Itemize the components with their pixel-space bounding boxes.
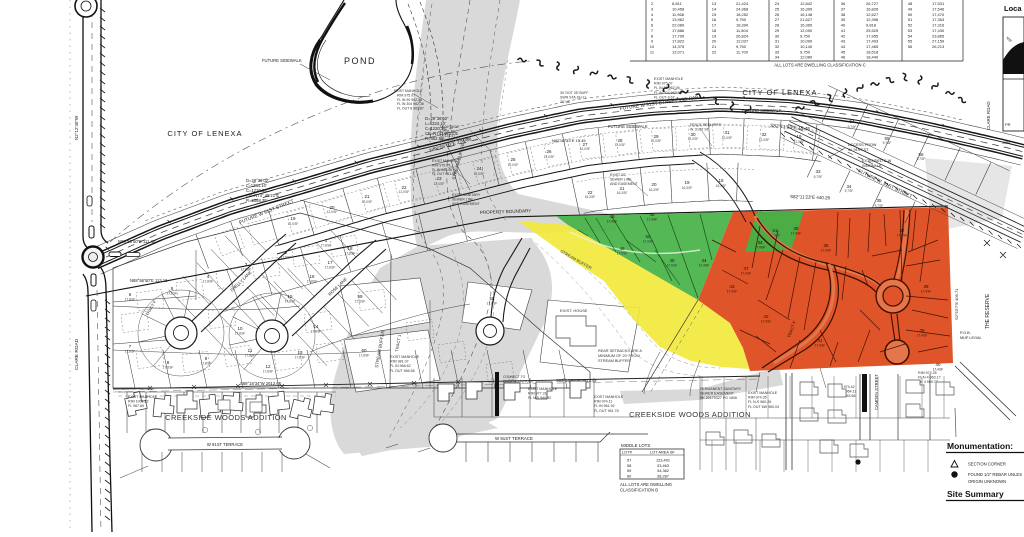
svg-text:FUTURE SIDEWALK: FUTURE SIDEWALK — [262, 58, 302, 63]
svg-text:FL IN 304 962.36: FL IN 304 962.36 — [397, 102, 424, 106]
svg-text:22: 22 — [712, 49, 717, 54]
svg-text:12,0 SF: 12,0 SF — [288, 222, 299, 226]
svg-text:LOT AREA SF: LOT AREA SF — [650, 450, 675, 455]
svg-text:17,4 SF: 17,4 SF — [791, 232, 802, 236]
svg-text:54: 54 — [849, 119, 855, 124]
svg-text:FL IN 968.62: FL IN 968.62 — [390, 364, 411, 368]
svg-text:17,4 SF: 17,4 SF — [917, 334, 928, 338]
svg-text:12,842: 12,842 — [800, 1, 813, 6]
svg-text:17,4 SF: 17,4 SF — [815, 344, 826, 348]
svg-text:17,4 SF: 17,4 SF — [761, 320, 772, 324]
svg-text:RIM 1001.22: RIM 1001.22 — [128, 400, 149, 404]
svg-text:17,8 SF: 17,8 SF — [125, 350, 136, 354]
svg-text:12,0 SF: 12,0 SF — [474, 172, 485, 176]
svg-text:42: 42 — [763, 314, 769, 319]
svg-text:17,8 SF: 17,8 SF — [325, 266, 336, 270]
svg-text:CLARE ROAD: CLARE ROAD — [986, 101, 991, 130]
svg-text:19: 19 — [290, 216, 296, 221]
svg-text:39: 39 — [919, 328, 925, 333]
svg-text:FUTURE SIDEWALK: FUTURE SIDEWALK — [608, 124, 648, 129]
svg-text:18,252: 18,252 — [736, 12, 749, 17]
svg-text:123,401: 123,401 — [656, 458, 670, 463]
svg-text:FL IN 962.06: FL IN 962.06 — [432, 168, 452, 172]
svg-text:9,750: 9,750 — [736, 44, 747, 49]
svg-text:47: 47 — [743, 266, 749, 271]
svg-text:L=131.63: L=131.63 — [440, 129, 455, 133]
svg-text:54: 54 — [908, 33, 913, 38]
svg-text:11,804: 11,804 — [736, 28, 749, 33]
svg-text:STREAM BUFFER: STREAM BUFFER — [598, 359, 630, 363]
svg-text:16: 16 — [309, 274, 315, 279]
svg-text:17,8 SF: 17,8 SF — [295, 356, 306, 360]
svg-text:R=2388.35’: R=2388.35’ — [246, 198, 268, 203]
svg-text:12,071: 12,071 — [672, 49, 685, 54]
svg-text:30’ DOT 35’ BUFF: 30’ DOT 35’ BUFF — [560, 91, 588, 95]
svg-text:9,818: 9,818 — [866, 23, 877, 28]
svg-text:11,968: 11,968 — [672, 12, 685, 17]
svg-text:Monumentation:: Monumentation: — [947, 441, 1013, 451]
svg-text:N2°12’45”W: N2°12’45”W — [74, 115, 79, 140]
svg-text:FL IN 30 962.06: FL IN 30 962.06 — [654, 86, 680, 90]
svg-text:21,627: 21,627 — [800, 17, 813, 22]
svg-text:19: 19 — [684, 180, 690, 185]
svg-text:26: 26 — [546, 149, 552, 154]
svg-text:9,7 SF: 9,7 SF — [845, 189, 854, 193]
svg-text:EXIST 30”: EXIST 30” — [610, 173, 627, 177]
svg-text:BK 4 969.77: BK 4 969.77 — [918, 380, 938, 384]
svg-text:17,8 SF: 17,8 SF — [263, 370, 274, 374]
svg-text:43: 43 — [729, 284, 735, 289]
svg-text:S2°53’7”E 409.71: S2°53’7”E 409.71 — [954, 288, 959, 320]
svg-text:EXIST MANHOLE: EXIST MANHOLE — [128, 395, 158, 399]
svg-text:RIM 974.35: RIM 974.35 — [748, 396, 767, 400]
svg-text:11,700: 11,700 — [736, 49, 749, 54]
svg-text:RIM 977.31: RIM 977.31 — [528, 392, 547, 396]
svg-text:16,395: 16,395 — [800, 7, 813, 12]
svg-text:19: 19 — [712, 33, 717, 38]
svg-text:13: 13 — [712, 1, 717, 6]
svg-text:26,824: 26,824 — [736, 33, 749, 38]
svg-text:12,627: 12,627 — [866, 12, 879, 17]
svg-text:17,4 SF: 17,4 SF — [607, 220, 618, 224]
svg-text:SWR STA 18+11: SWR STA 18+11 — [560, 95, 586, 99]
svg-text:17,4 SF: 17,4 SF — [727, 290, 738, 294]
svg-text:23: 23 — [436, 176, 442, 181]
svg-text:16,3 SF: 16,3 SF — [716, 184, 727, 188]
svg-text:12,0 SF: 12,0 SF — [759, 138, 770, 142]
svg-text:EXIST. HOUSE: EXIST. HOUSE — [560, 308, 588, 313]
svg-text:17,363: 17,363 — [932, 17, 945, 22]
svg-text:59: 59 — [357, 294, 363, 299]
svg-text:EXTENDED C-W: EXTENDED C-W — [862, 159, 892, 163]
svg-text:49: 49 — [619, 246, 625, 251]
svg-text:52: 52 — [908, 23, 913, 28]
svg-text:17,8 SF: 17,8 SF — [321, 244, 332, 248]
svg-text:ACCESS PROW: ACCESS PROW — [848, 143, 877, 147]
svg-text:17,5 SF: 17,5 SF — [617, 252, 628, 256]
svg-text:17,8 SF: 17,8 SF — [487, 302, 498, 306]
svg-text:SEWER LINE: SEWER LINE — [610, 177, 632, 181]
svg-text:9,7 SF: 9,7 SF — [814, 175, 823, 179]
svg-text:23,865: 23,865 — [932, 33, 945, 38]
svg-text:RIM 974.26: RIM 974.26 — [918, 371, 937, 375]
svg-text:45: 45 — [649, 212, 655, 217]
svg-text:9,7 SF: 9,7 SF — [875, 204, 884, 208]
svg-text:W. 91ST ST.: W. 91ST ST. — [848, 148, 869, 152]
svg-text:17,8 SF: 17,8 SF — [281, 256, 292, 260]
svg-text:41: 41 — [841, 28, 846, 33]
svg-text:18,390: 18,390 — [736, 23, 749, 28]
svg-text:17,799: 17,799 — [672, 33, 685, 38]
svg-text:25: 25 — [775, 7, 780, 12]
svg-text:PR: PR — [1005, 122, 1011, 127]
svg-text:18,440: 18,440 — [866, 55, 879, 60]
svg-text:17,4 SF: 17,4 SF — [643, 240, 654, 244]
svg-text:CONNECT TO: CONNECT TO — [503, 375, 526, 379]
svg-text:14: 14 — [313, 324, 319, 329]
svg-text:CITY OF LENEXA: CITY OF LENEXA — [742, 88, 817, 97]
svg-text:26,213: 26,213 — [932, 44, 945, 49]
svg-text:27: 27 — [775, 17, 780, 22]
svg-text:17,465: 17,465 — [866, 44, 879, 49]
svg-text:39: 39 — [841, 17, 846, 22]
svg-text:9,7 SF: 9,7 SF — [917, 157, 926, 161]
svg-text:16,365: 16,365 — [800, 23, 813, 28]
svg-text:SEWER EASEMENT: SEWER EASEMENT — [700, 392, 735, 396]
svg-text:POND: POND — [344, 56, 376, 66]
svg-text:35: 35 — [793, 226, 799, 231]
svg-text:34: 34 — [775, 55, 780, 60]
svg-text:57: 57 — [627, 458, 631, 463]
svg-text:FL 987.69: FL 987.69 — [128, 404, 144, 408]
svg-text:24: 24 — [775, 1, 780, 6]
svg-text:CREEKSIDE WOODS ADDITION: CREEKSIDE WOODS ADDITION — [165, 413, 287, 422]
svg-text:EXIST MANHOLE: EXIST MANHOLE — [594, 395, 624, 399]
svg-text:12,0 SF: 12,0 SF — [580, 147, 591, 151]
svg-text:12,0 SF: 12,0 SF — [434, 182, 445, 186]
svg-text:30: 30 — [775, 33, 780, 38]
svg-text:36: 36 — [841, 1, 846, 6]
svg-text:17,430: 17,430 — [932, 28, 945, 33]
svg-text:10,458: 10,458 — [672, 7, 685, 12]
svg-text:9,750: 9,750 — [800, 49, 811, 54]
svg-text:17,8 SF: 17,8 SF — [201, 362, 212, 366]
svg-text:Site Summary: Site Summary — [947, 489, 1004, 499]
svg-text:ALL LOTS ARE DWELLING: ALL LOTS ARE DWELLING — [620, 482, 672, 487]
svg-text:18,518: 18,518 — [866, 49, 879, 54]
svg-text:44: 44 — [841, 44, 846, 49]
svg-text:56: 56 — [908, 44, 913, 49]
svg-text:12,0 SF: 12,0 SF — [615, 143, 626, 147]
svg-text:14: 14 — [712, 7, 717, 12]
svg-text:25: 25 — [510, 157, 516, 162]
svg-text:16,3 SF: 16,3 SF — [649, 188, 660, 192]
svg-text:59: 59 — [627, 468, 631, 473]
svg-text:RIM 975.07: RIM 975.07 — [654, 82, 673, 86]
svg-text:60: 60 — [361, 348, 367, 353]
svg-text:45: 45 — [841, 49, 846, 54]
svg-text:EXIST MANHOLE: EXIST MANHOLE — [654, 77, 684, 81]
svg-text:CITY OF LENEXA: CITY OF LENEXA — [167, 129, 242, 138]
svg-text:33: 33 — [815, 169, 821, 174]
svg-text:49: 49 — [908, 7, 913, 12]
svg-text:LOT#: LOT# — [622, 450, 633, 455]
svg-text:9,7 SF: 9,7 SF — [848, 125, 857, 129]
svg-text:35: 35 — [876, 198, 882, 203]
svg-text:20: 20 — [712, 39, 717, 44]
svg-text:41: 41 — [817, 338, 823, 343]
svg-text:58: 58 — [489, 296, 495, 301]
svg-text:EXIST MANHOLE: EXIST MANHOLE — [390, 355, 420, 359]
svg-text:CAMDEN STREET: CAMDEN STREET — [874, 374, 879, 410]
svg-text:38: 38 — [841, 12, 846, 17]
svg-text:12,090: 12,090 — [800, 28, 813, 33]
svg-text:25,525: 25,525 — [866, 28, 879, 33]
svg-text:RIM 975.07: RIM 975.07 — [432, 163, 450, 167]
svg-text:21: 21 — [364, 194, 370, 199]
svg-text:N88°56’50”E 113.16: N88°56’50”E 113.16 — [130, 278, 168, 283]
svg-text:W 91ST TERRACE: W 91ST TERRACE — [207, 442, 243, 447]
svg-text:ALL LOTS ARE DWELLING CLASSIFI: ALL LOTS ARE DWELLING CLASSIFICATION C — [774, 63, 865, 68]
svg-text:17,4 SF: 17,4 SF — [755, 246, 766, 250]
svg-text:33: 33 — [775, 49, 780, 54]
svg-text:SIDEWALK: SIDEWALK — [862, 164, 882, 168]
svg-text:50: 50 — [908, 12, 913, 17]
svg-text:42: 42 — [841, 33, 846, 38]
svg-text:EXIST MANHOLE: EXIST MANHOLE — [748, 391, 778, 395]
svg-text:PERMANENT SANITARY: PERMANENT SANITARY — [700, 387, 742, 391]
svg-text:16,826: 16,826 — [866, 7, 879, 12]
svg-text:Loca: Loca — [1004, 4, 1022, 13]
svg-text:12,0 SF: 12,0 SF — [688, 137, 699, 141]
svg-text:W. 91ST ST.: W. 91ST ST. — [690, 127, 710, 131]
svg-text:31: 31 — [724, 130, 730, 135]
svg-text:N88°56’50”E 111.42’: N88°56’50”E 111.42’ — [118, 239, 156, 244]
svg-text:12,0 SF: 12,0 SF — [544, 155, 555, 159]
svg-text:32: 32 — [761, 132, 767, 137]
svg-text:17,4 SF: 17,4 SF — [699, 264, 710, 268]
svg-text:33,463: 33,463 — [657, 463, 669, 468]
svg-text:53: 53 — [908, 28, 913, 33]
svg-text:CB=N79° 47’21”E: CB=N79° 47’21”E — [440, 138, 468, 142]
svg-text:17,8 SF: 17,8 SF — [345, 252, 356, 256]
svg-text:C=131.47: C=131.47 — [440, 134, 455, 138]
svg-text:12,0 SF: 12,0 SF — [508, 163, 519, 167]
svg-text:6,811: 6,811 — [672, 1, 682, 6]
svg-text:CLARE ROAD: CLARE ROAD — [74, 338, 80, 370]
svg-text:17,5 SF: 17,5 SF — [667, 264, 678, 268]
svg-text:17,8 SF: 17,8 SF — [355, 300, 366, 304]
svg-text:FL OUT 6W 960.04: FL OUT 6W 960.04 — [748, 405, 779, 409]
svg-text:36: 36 — [823, 243, 829, 248]
svg-text:17,8 SF: 17,8 SF — [285, 300, 296, 304]
svg-text:RIM 975.07: RIM 975.07 — [397, 93, 415, 97]
svg-text:17,4 SF: 17,4 SF — [647, 218, 658, 222]
svg-text:P.O.B.: P.O.B. — [960, 331, 971, 335]
svg-text:FL OUT 8.67: FL OUT 8.67 — [654, 95, 675, 99]
svg-text:17: 17 — [712, 23, 717, 28]
svg-text:EXIST MANHOLE: EXIST MANHOLE — [528, 387, 558, 391]
svg-text:17,470: 17,470 — [932, 12, 945, 17]
svg-text:43: 43 — [841, 39, 846, 44]
svg-text:CREEKSIDE WOODS ADDITION: CREEKSIDE WOODS ADDITION — [629, 410, 751, 419]
svg-text:12: 12 — [265, 364, 271, 369]
svg-text:17,8 SF: 17,8 SF — [203, 280, 214, 284]
svg-text:10: 10 — [650, 44, 655, 49]
svg-text:48: 48 — [908, 1, 913, 6]
svg-text:17,8 SF: 17,8 SF — [167, 292, 178, 296]
svg-text:9,7 SF: 9,7 SF — [883, 141, 892, 145]
svg-text:26,727: 26,727 — [866, 1, 879, 6]
svg-text:17,8 SF: 17,8 SF — [241, 268, 252, 272]
svg-text:31: 31 — [775, 39, 780, 44]
svg-text:FL N 4 963.17: FL N 4 963.17 — [918, 376, 941, 380]
svg-text:44: 44 — [701, 258, 707, 263]
svg-text:17,8 SF: 17,8 SF — [359, 354, 370, 358]
svg-text:32: 32 — [775, 44, 780, 49]
svg-text:SECTION CORNER: SECTION CORNER — [968, 462, 1006, 467]
svg-text:17: 17 — [327, 260, 333, 265]
svg-text:13,962: 13,962 — [672, 17, 685, 22]
svg-text:27,159: 27,159 — [932, 39, 945, 44]
svg-text:16: 16 — [712, 17, 717, 22]
svg-text:17,8 SF: 17,8 SF — [311, 330, 322, 334]
svg-text:46: 46 — [841, 55, 846, 60]
svg-text:40: 40 — [935, 362, 941, 367]
svg-text:17,316: 17,316 — [932, 23, 945, 28]
svg-text:50: 50 — [645, 234, 651, 239]
svg-text:16,3 SF: 16,3 SF — [617, 191, 628, 195]
svg-text:17,546: 17,546 — [932, 7, 945, 12]
svg-text:W 91ST TERRACE: W 91ST TERRACE — [495, 436, 533, 441]
svg-text:SEWER LINE: SEWER LINE — [452, 197, 474, 201]
svg-text:46: 46 — [609, 214, 615, 219]
svg-text:FENCE REQUIRED: FENCE REQUIRED — [690, 123, 722, 127]
svg-text:MIDDLE LOTS: MIDDLE LOTS — [621, 443, 650, 448]
svg-text:17,8 SF: 17,8 SF — [125, 298, 136, 302]
svg-text:AND EASEMENT: AND EASEMENT — [452, 202, 480, 206]
svg-text:FOUND 1/2” REBAR UNLES: FOUND 1/2” REBAR UNLES — [968, 472, 1022, 477]
svg-text:55: 55 — [908, 39, 913, 44]
svg-text:15: 15 — [712, 12, 717, 17]
svg-text:FL N-S 960.92: FL N-S 960.92 — [528, 396, 551, 400]
svg-text:12,037: 12,037 — [736, 39, 749, 44]
svg-text:EXIST MANHOLE: EXIST MANHOLE — [394, 89, 423, 93]
svg-text:D=09°36’02”: D=09°36’02” — [440, 125, 460, 129]
svg-text:CLASSIFICATION B: CLASSIFICATION B — [620, 488, 658, 493]
svg-text:ORIGIN UNKNOWN: ORIGIN UNKNOWN — [968, 479, 1006, 484]
svg-text:16,3 SF: 16,3 SF — [682, 186, 693, 190]
svg-text:9,750: 9,750 — [800, 33, 811, 38]
svg-text:17,4 SF: 17,4 SF — [897, 234, 908, 238]
svg-text:10,140: 10,140 — [800, 44, 813, 49]
svg-text:12,0 SF: 12,0 SF — [362, 200, 373, 204]
svg-text:10: 10 — [237, 326, 243, 331]
svg-text:12,080: 12,080 — [800, 55, 813, 60]
svg-text:MUP LEGAL: MUP LEGAL — [960, 336, 982, 340]
svg-text:34,362: 34,362 — [657, 468, 669, 473]
svg-text:20: 20 — [651, 182, 657, 187]
svg-text:17,8 SF: 17,8 SF — [163, 366, 174, 370]
svg-text:18: 18 — [718, 178, 724, 183]
svg-text:19: 19 — [796, 134, 802, 139]
svg-text:15: 15 — [287, 294, 293, 299]
svg-text:24: 24 — [476, 166, 482, 171]
svg-text:29: 29 — [775, 28, 780, 33]
svg-text:40: 40 — [841, 23, 846, 28]
svg-text:20’ UE: 20’ UE — [560, 100, 571, 104]
svg-text:BK 20170327 PG 1806: BK 20170327 PG 1806 — [700, 396, 737, 400]
svg-text:37: 37 — [841, 7, 846, 12]
svg-text:34: 34 — [757, 240, 763, 245]
svg-text:17,4 SF: 17,4 SF — [821, 249, 832, 253]
svg-text:38: 38 — [923, 284, 929, 289]
svg-text:12,0 SF: 12,0 SF — [651, 139, 662, 143]
svg-text:12,0 SF: 12,0 SF — [794, 140, 805, 144]
svg-text:17,822: 17,822 — [672, 39, 685, 44]
svg-text:26: 26 — [775, 12, 780, 17]
svg-text:48: 48 — [669, 258, 675, 263]
svg-text:17,886: 17,886 — [672, 28, 685, 33]
svg-text:28: 28 — [775, 23, 780, 28]
svg-text:RIM 981.07: RIM 981.07 — [390, 360, 409, 364]
svg-text:17,8 SF: 17,8 SF — [245, 354, 256, 358]
svg-text:13: 13 — [297, 350, 303, 355]
svg-text:MINIMUM OF 20’ FROM: MINIMUM OF 20’ FROM — [598, 354, 640, 358]
svg-text:12,0 SF: 12,0 SF — [722, 136, 733, 140]
svg-text:17,4 SF: 17,4 SF — [741, 272, 752, 276]
svg-text:EXIST SANITARY: EXIST SANITARY — [452, 193, 481, 197]
svg-text:22,089: 22,089 — [672, 23, 685, 28]
svg-text:18: 18 — [347, 246, 353, 251]
svg-text:FL IN 304 962.36: FL IN 304 962.36 — [654, 91, 682, 95]
svg-text:RIM 974.11: RIM 974.11 — [594, 400, 612, 404]
svg-text:37: 37 — [899, 228, 905, 233]
svg-text:REAR SETBACKS ARE A: REAR SETBACKS ARE A — [598, 349, 642, 353]
svg-text:9,750: 9,750 — [736, 17, 747, 22]
svg-text:12,0 SF: 12,0 SF — [327, 210, 338, 214]
svg-text:11: 11 — [248, 348, 253, 353]
svg-text:12,398: 12,398 — [866, 17, 879, 22]
svg-text:21,424: 21,424 — [736, 1, 749, 6]
svg-text:17,531: 17,531 — [932, 1, 945, 6]
svg-text:51: 51 — [772, 228, 778, 233]
svg-text:THE RESERVE: THE RESERVE — [985, 293, 991, 329]
svg-text:FUTURE SIDEWALK: FUTURE SIDEWALK — [742, 108, 782, 113]
svg-text:17,955: 17,955 — [866, 33, 879, 38]
svg-text:18: 18 — [712, 28, 717, 33]
svg-text:FL IN 90 962.06: FL IN 90 962.06 — [397, 98, 422, 102]
svg-text:16,148: 16,148 — [800, 12, 813, 17]
svg-text:10,090: 10,090 — [800, 39, 813, 44]
svg-text:FL OUT 961.78: FL OUT 961.78 — [594, 409, 619, 413]
svg-text:16,3 SF: 16,3 SF — [585, 195, 596, 199]
svg-text:58: 58 — [627, 463, 631, 468]
svg-text:17,8 SF: 17,8 SF — [307, 280, 318, 284]
svg-text:24,968: 24,968 — [736, 7, 749, 12]
svg-text:JOH: JOH — [1002, 140, 1010, 145]
svg-text:38,287: 38,287 — [657, 473, 669, 478]
svg-text:51: 51 — [908, 17, 913, 22]
svg-text:12,0 SF: 12,0 SF — [399, 190, 410, 194]
svg-text:17,4 SF: 17,4 SF — [921, 290, 932, 294]
svg-text:14,375: 14,375 — [672, 44, 685, 49]
svg-text:FL IN 961.92: FL IN 961.92 — [594, 404, 615, 408]
svg-text:N82°11’23”E 15.45: N82°11’23”E 15.45 — [552, 138, 586, 143]
svg-text:21: 21 — [712, 44, 717, 49]
svg-text:17,493: 17,493 — [866, 39, 879, 44]
svg-text:17,8 SF: 17,8 SF — [235, 332, 246, 336]
